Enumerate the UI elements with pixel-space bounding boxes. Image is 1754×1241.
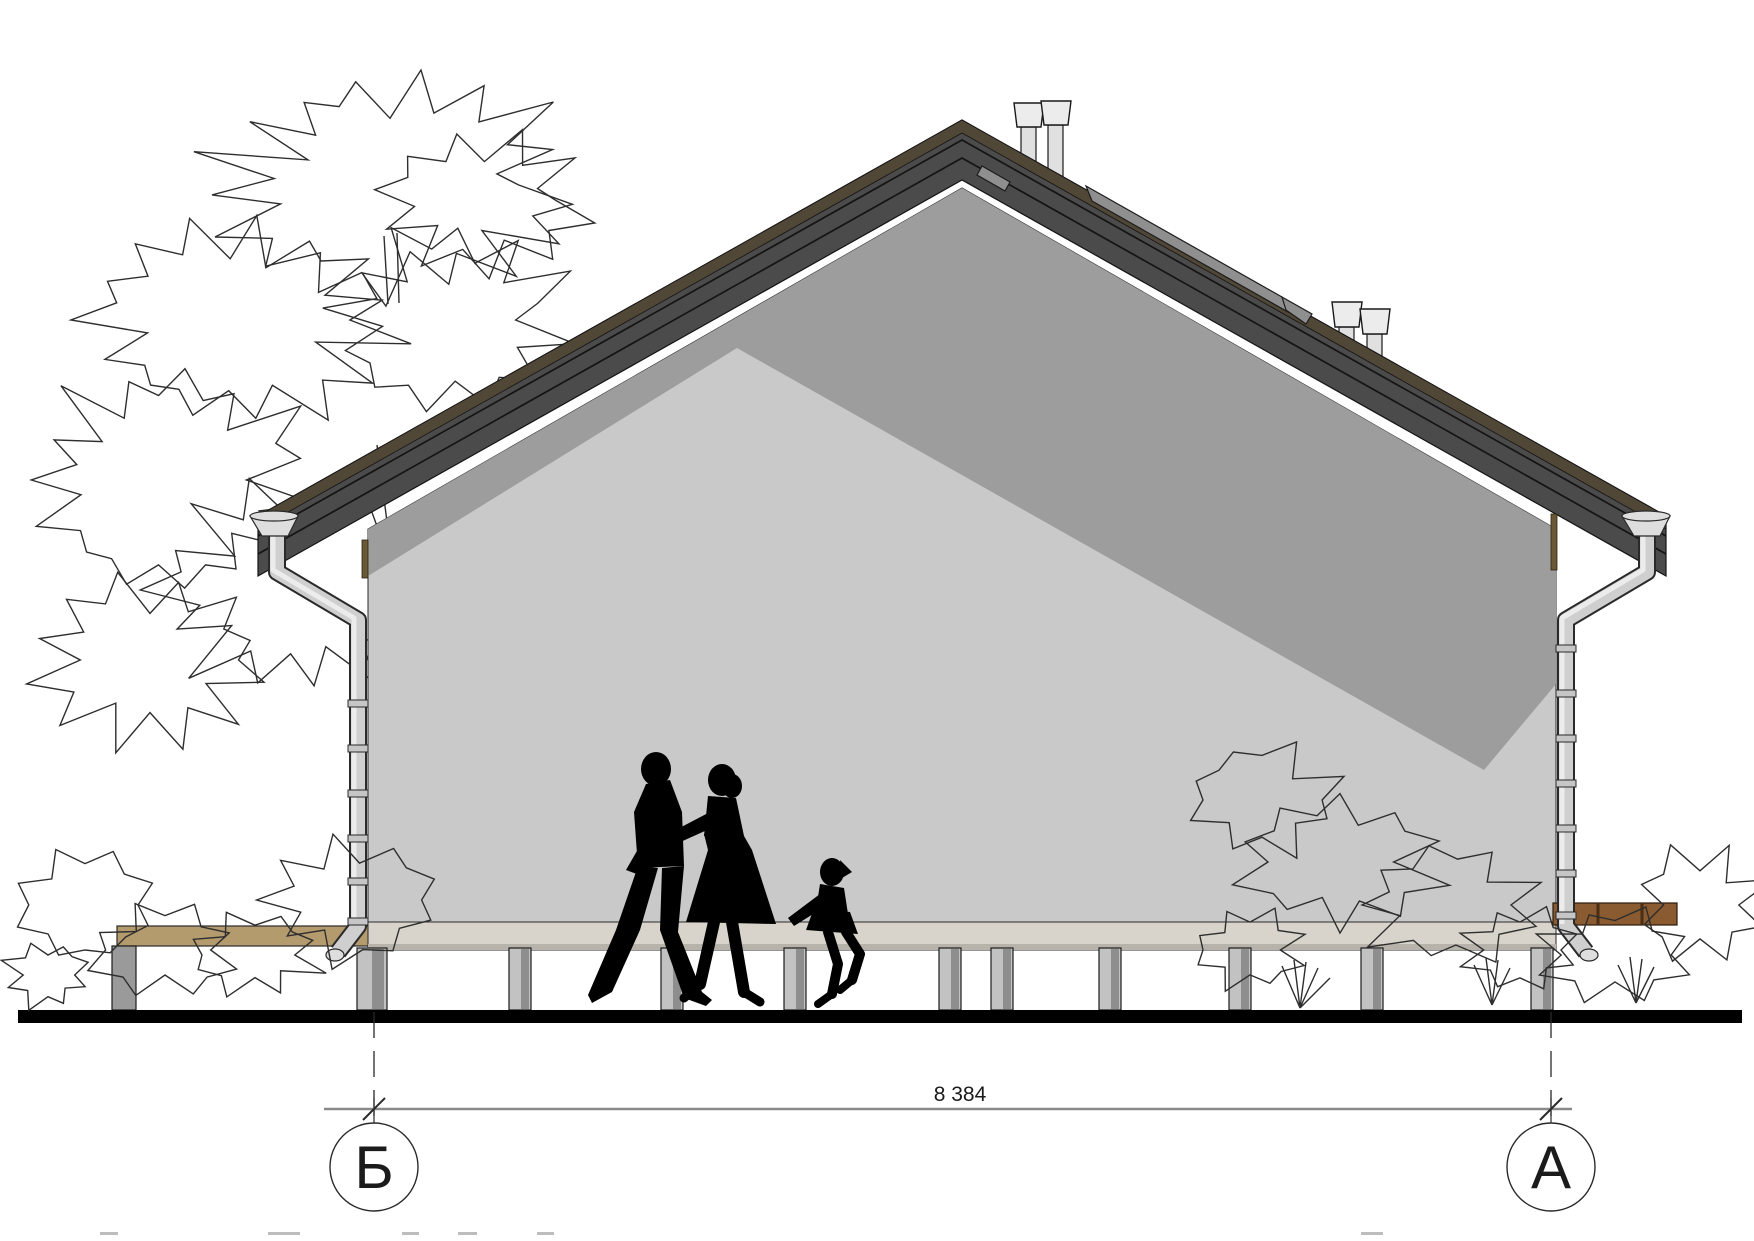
downspout-left — [250, 511, 368, 961]
pipe-collar — [348, 918, 368, 925]
pipe-collar — [1556, 645, 1576, 652]
bush-blob — [88, 904, 237, 996]
pile-shade — [1543, 949, 1551, 1009]
woman-hair — [722, 774, 742, 798]
grass-tuft — [1282, 960, 1330, 1008]
elevation-canvas: 8 384 Б А — [0, 0, 1754, 1241]
pipe-collar — [1556, 870, 1576, 877]
elevation-drawing: 8 384 Б А — [0, 0, 1754, 1241]
spout-outlet — [1580, 949, 1598, 961]
pipe-collar — [348, 835, 368, 842]
corner-trim-right — [1551, 514, 1557, 570]
tree-canopy-blob — [27, 572, 264, 753]
axis-label-right: А — [1531, 1134, 1571, 1201]
downspout-highlight — [273, 536, 354, 924]
pipe-collar — [1556, 780, 1576, 787]
pile-shade — [1003, 949, 1011, 1009]
tree-canopy-blob — [194, 70, 573, 306]
pipe-collar — [1556, 912, 1576, 919]
bush-blob — [1, 943, 88, 1010]
grass-tuft — [1618, 957, 1654, 1003]
cropped-text-fragment — [402, 1232, 419, 1235]
pipe-collar — [348, 790, 368, 797]
pipe-collar — [1556, 690, 1576, 697]
child-foot-front — [818, 994, 832, 1004]
corner-trim-left — [362, 540, 368, 578]
downspout-right — [1556, 511, 1670, 961]
downspout-pipe — [1566, 534, 1647, 952]
pipe-collar — [348, 878, 368, 885]
pile-shade — [1111, 949, 1119, 1009]
pile-shade — [951, 949, 959, 1009]
pipe-collar — [348, 745, 368, 752]
pipe-collar — [1556, 825, 1576, 832]
tree-canopy-blob — [71, 216, 411, 421]
vent-cap — [1332, 302, 1362, 327]
cropped-text-fragment — [1361, 1232, 1383, 1235]
woman-foot-front — [744, 992, 760, 1002]
foundation-piles — [357, 948, 1553, 1010]
vent-cap — [1360, 309, 1390, 334]
child-foot-back — [840, 980, 852, 990]
pile-shade — [796, 949, 804, 1009]
axis-label-left: Б — [354, 1134, 393, 1201]
cropped-text-fragments — [100, 1232, 1383, 1235]
cropped-text-fragment — [458, 1232, 477, 1235]
cropped-text-fragment — [268, 1232, 300, 1235]
dimensioning: 8 384 Б А — [324, 1012, 1595, 1211]
gable-wall — [362, 188, 1557, 922]
pipe-collar — [1556, 735, 1576, 742]
vent-cap — [1041, 101, 1071, 125]
cropped-text-fragment — [537, 1232, 554, 1235]
vent-cap — [1014, 103, 1044, 127]
gutter-funnel-rim — [250, 511, 298, 521]
pipe-collar — [348, 700, 368, 707]
cropped-text-fragment — [100, 1232, 118, 1235]
pile-shade — [1373, 949, 1381, 1009]
grass-tuft — [1474, 958, 1510, 1005]
dimension-value: 8 384 — [934, 1083, 987, 1106]
gutter-funnel-rim — [1622, 511, 1670, 521]
bush-blob — [193, 912, 326, 997]
ground-line — [18, 1010, 1742, 1023]
pile-shade — [521, 949, 529, 1009]
pile-shade — [372, 949, 384, 1009]
